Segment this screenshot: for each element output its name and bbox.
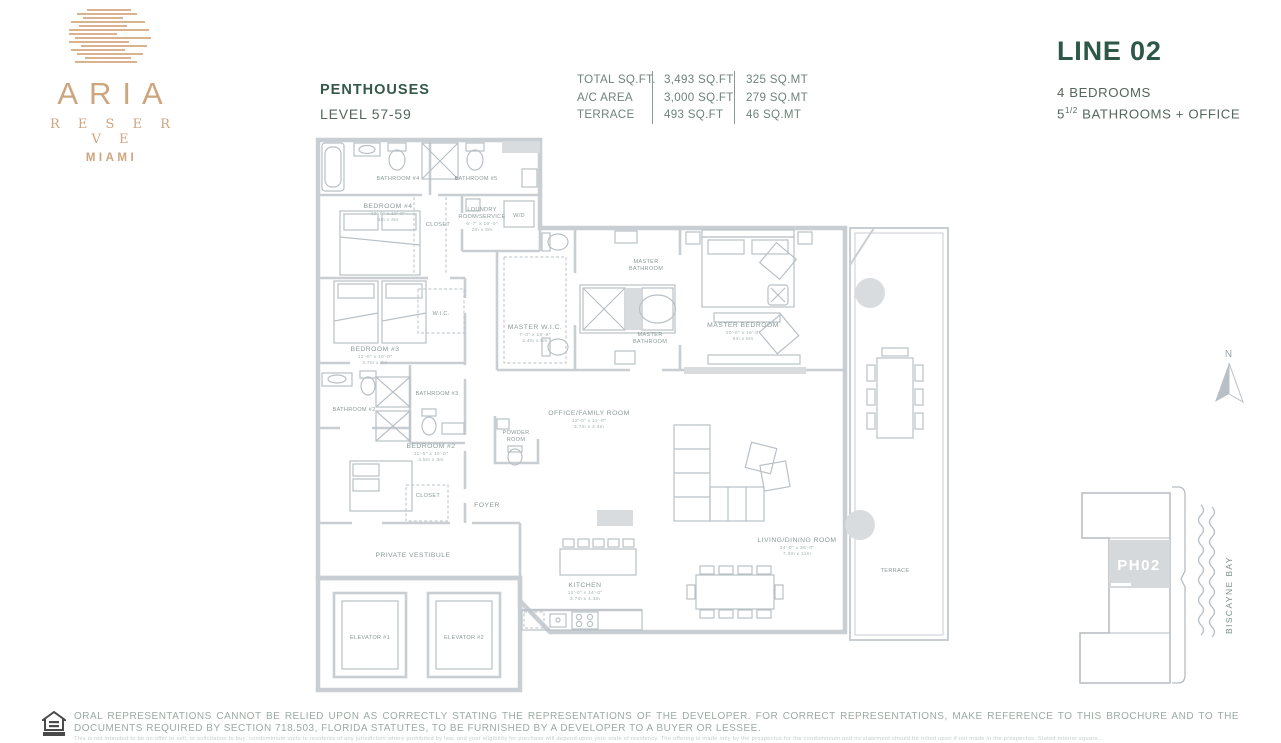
room-label: MASTER [637,332,662,338]
bath-rest: BATHROOMS + OFFICE [1078,106,1240,121]
keyplan-unit-label: PH02 [1117,557,1161,574]
room-label: LIVING/DINING ROOM [757,537,836,544]
room-dims: 12'-0" x 10'-0" [358,354,393,360]
plan-level: LEVEL 57-59 [320,106,412,122]
room-label: ROOM/SERVICE [458,214,505,220]
stats-sqft: 3,493 SQ.FT [652,71,734,89]
stats-label: A/C AREA [577,89,652,107]
stats-label: TERRACE [577,106,652,124]
plan-category: PENTHOUSES [320,82,430,98]
stats-sqmt: 46 SQ.MT [734,106,808,124]
brochure-page: ARIA R E S E R V E MIAMI PENTHOUSES LEVE… [0,0,1281,743]
room-label: KITCHEN [569,582,602,589]
compass: N [1205,349,1253,407]
north-arrow-icon [1205,360,1253,404]
bath-count: 5 [1057,106,1065,121]
room-dims: 12'-0" x 14'-0" [568,590,603,596]
room-label: BATHROOM #3 [416,391,459,397]
legal-footer: ORAL REPRESENTATIONS CANNOT BE RELIED UP… [42,711,1239,742]
room-label: W/D [513,213,525,219]
room-dims: 6m x 5m [733,336,754,342]
brand-city: MIAMI [43,152,180,164]
floor-plan: BATHROOM #4 BATHROOM #5 BEDROOM #4 10'-0… [310,133,970,695]
room-label: POWDER [503,430,530,436]
room-label: BEDROOM #3 [350,346,399,353]
stats-sqmt: 325 SQ.MT [734,71,808,89]
building-east-edge [1172,487,1185,683]
aria-logo-mark-icon [67,8,153,66]
equal-housing-icon [42,711,66,737]
room-dims: 3m x 3m [378,217,399,223]
room-label: W.I.C. [432,311,449,317]
room-label: ELEVATOR #2 [444,635,484,641]
room-label: ROOM [507,437,526,443]
keyplan-unit-marker [1111,583,1131,586]
stats-sqmt: 279 SQ.MT [734,89,808,107]
room-dims: 3.7m x 3.4m [574,424,604,430]
stats-labels-column: TOTAL SQ.FT. A/C AREA TERRACE [577,71,652,124]
room-dims: 7.3m x 11m [783,551,811,557]
room-dims: 10'-0" x 10'-0" [371,211,406,217]
room-label: BEDROOM #2 [406,443,455,450]
water-waves-icon [1194,503,1220,643]
room-dims: 11'-5" x 10'-0" [414,451,448,457]
unit-bedrooms: 4 BEDROOMS [1057,85,1151,100]
room-label: BATHROOM [629,266,663,272]
room-dims: 2m x 3m [472,227,493,233]
room-label: ELEVATOR #1 [350,635,390,641]
stats-label: TOTAL SQ.FT. [577,71,652,89]
room-label: MASTER W.I.C. [508,324,563,331]
room-label: CLOSET [426,222,450,228]
room-label: MASTER BEDROOM [707,322,779,329]
room-label: BEDROOM #4 [363,203,412,210]
room-label: MASTER [633,259,658,265]
room-label: LOUNDRY [467,207,496,213]
room-labels: BATHROOM #4 BATHROOM #5 BEDROOM #4 10'-0… [333,176,910,641]
water-label: BISCAYNE BAY [1224,514,1234,634]
area-stats-table: TOTAL SQ.FT. A/C AREA TERRACE 3,493 SQ.F… [577,71,808,124]
room-dims: 3.5m x 3m [418,457,444,463]
room-label: PRIVATE VESTIBULE [375,552,450,559]
compass-n-label: N [1205,349,1253,360]
disclaimer-line-2: This is not intended to be an offer to s… [74,736,1239,742]
stats-sqft: 3,000 SQ.FT [652,89,734,107]
room-label: BATHROOM #2 [333,407,376,413]
unit-line-title: LINE 02 [1057,36,1162,67]
unit-bathrooms: 51/2 BATHROOMS + OFFICE [1057,106,1240,121]
room-label: OFFICE/FAMILY ROOM [548,410,630,417]
room-dims: 3.7m x 4.3m [570,596,600,602]
room-dims: 2.4m x 5m [522,338,548,344]
room-dims: 24'-0" x 36'-0" [780,545,815,551]
stats-sqft-column: 3,493 SQ.FT 3,000 SQ.FT 493 SQ.FT [652,71,734,124]
room-dims: 3.7m x 3m [362,360,388,366]
stats-sqft: 493 SQ.FT [652,106,734,124]
room-label: BATHROOM #4 [377,176,420,182]
room-label: FOYER [474,502,500,509]
room-label: TERRACE [881,568,910,574]
room-label: BATHROOM #5 [455,176,498,182]
room-dims: 7'-0" x 16'-8" [519,332,551,338]
brand-sub: R E S E R V E [47,117,180,147]
room-dims: 20'-0" x 16'-8" [726,330,761,336]
stats-sqmt-column: 325 SQ.MT 279 SQ.MT 46 SQ.MT [734,71,808,124]
brand-logo: ARIA R E S E R V E MIAMI [40,8,180,164]
room-dims: 12'-0" x 11'-0" [572,418,606,424]
brand-name: ARIA [51,76,180,112]
room-label: CLOSET [416,493,440,499]
bath-half-sup: 1/2 [1065,106,1078,115]
room-label: BATHROOM [633,339,667,345]
disclaimer-text: ORAL REPRESENTATIONS CANNOT BE RELIED UP… [74,711,1239,742]
disclaimer-line-1: ORAL REPRESENTATIONS CANNOT BE RELIED UP… [74,711,1239,734]
room-dims: 6'-7" x 10'-0" [466,221,498,227]
